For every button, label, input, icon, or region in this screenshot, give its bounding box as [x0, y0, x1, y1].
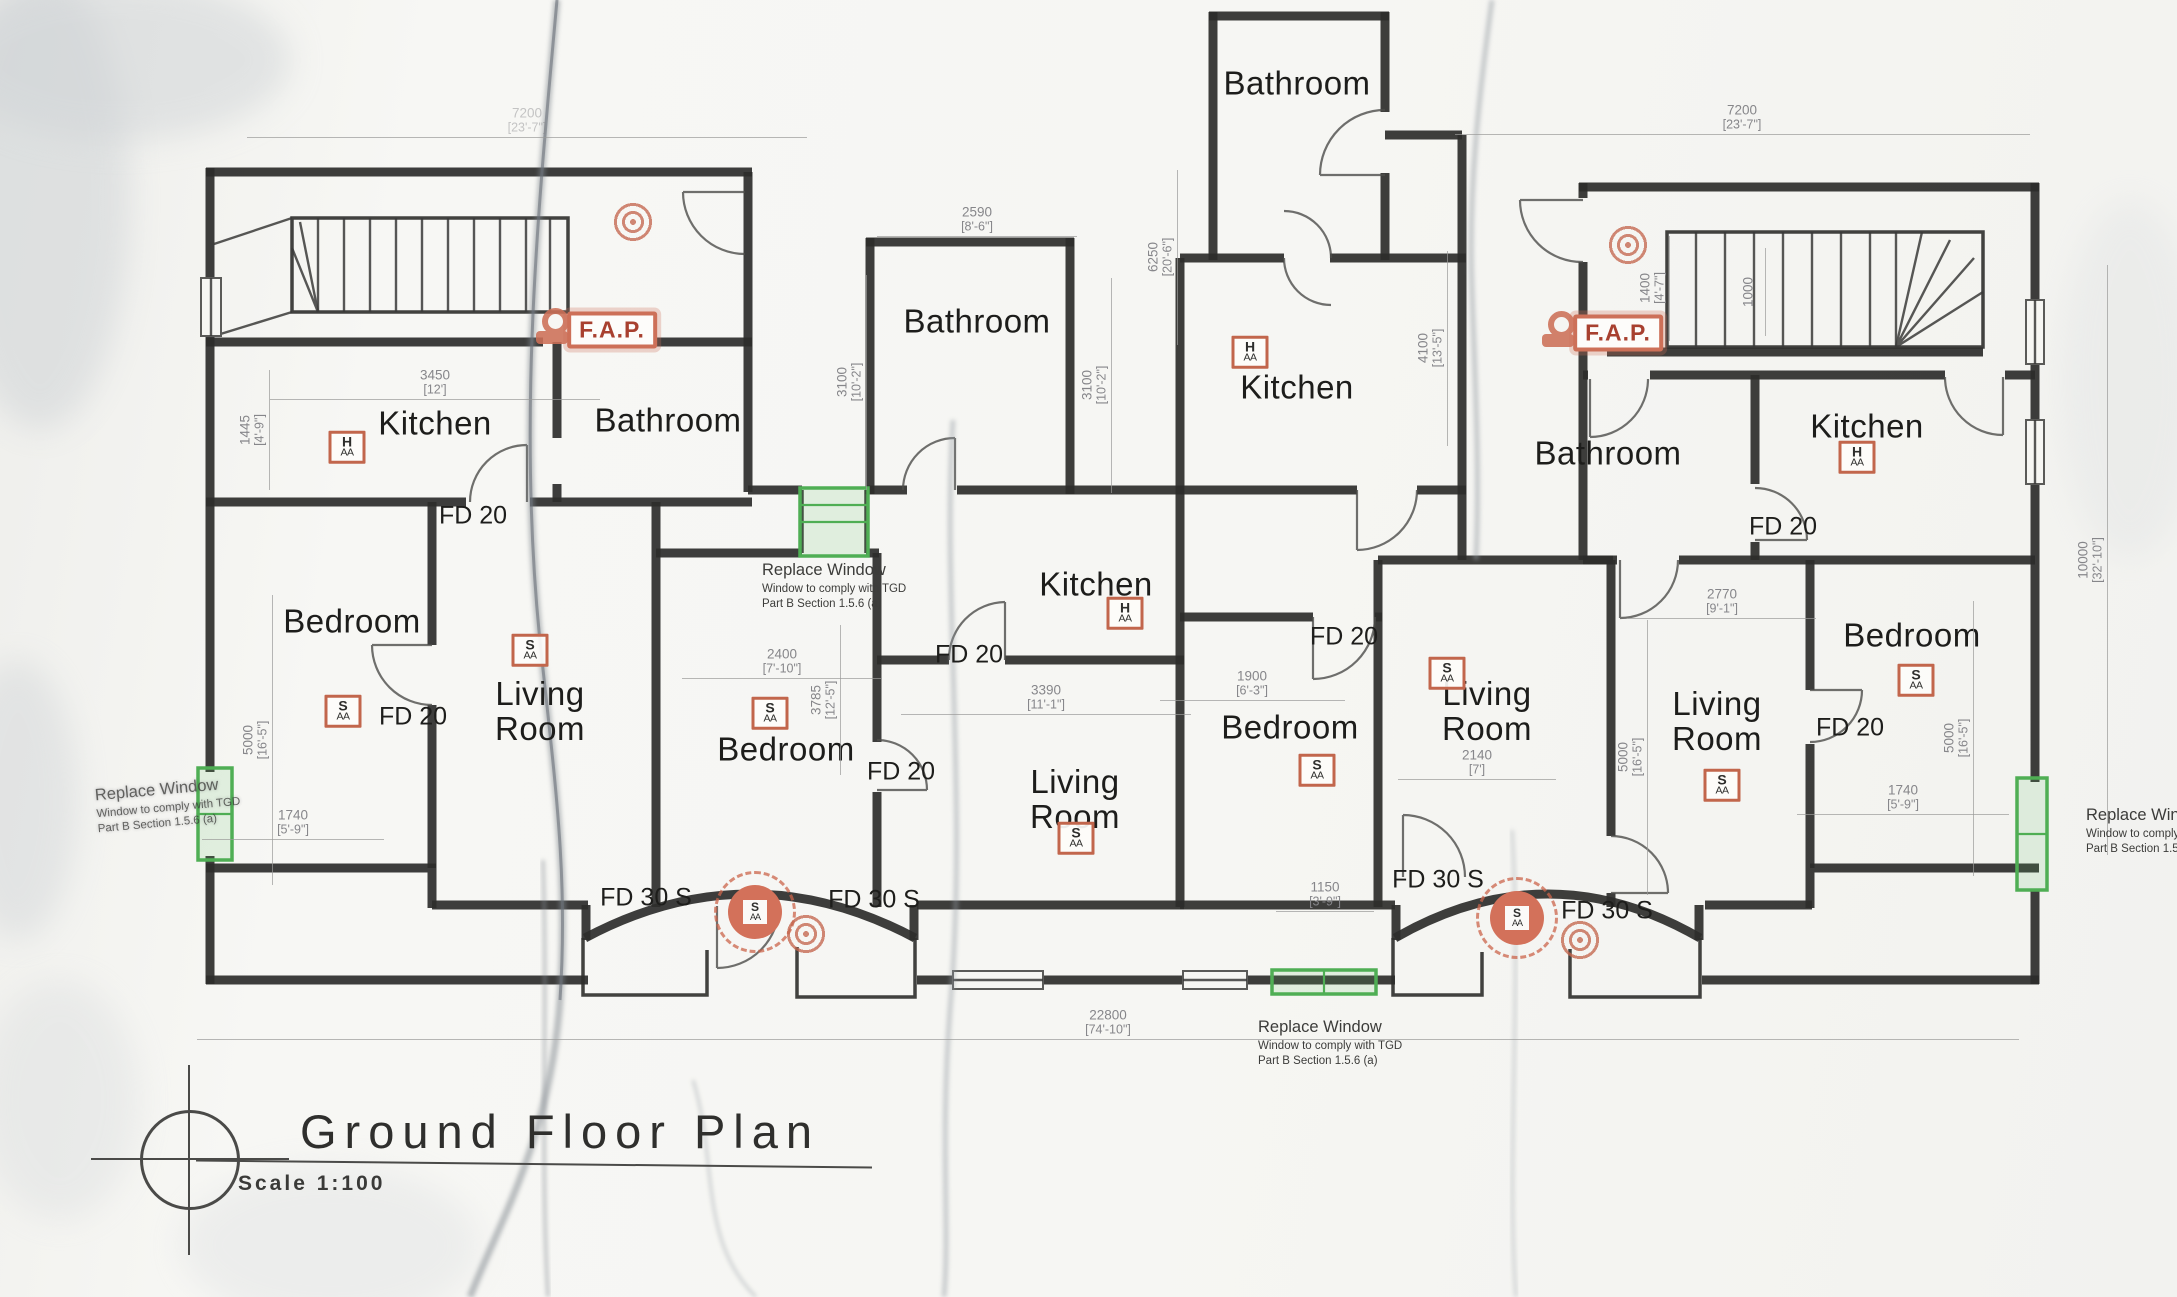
fire-door-label: FD 20: [935, 641, 1003, 670]
dimension-label: 2400[7'-10"]: [763, 646, 802, 675]
dimension-label: 5000[16'-5"]: [1941, 719, 1970, 758]
dimension-label: 3450[12']: [420, 367, 450, 396]
dimension-line: [1160, 700, 1345, 701]
dimension-line: [1177, 170, 1178, 345]
dimension-label: 2770[9'-1"]: [1706, 586, 1738, 615]
stairs-group: [214, 218, 1983, 347]
dimension-line: [1111, 278, 1112, 493]
fire-door-label: FD 30 S: [600, 884, 692, 913]
smoke-alarm-icon: SAA: [1299, 754, 1336, 787]
smoke-alarm-icon: SAA: [325, 695, 362, 728]
dimension-label: 2140[7']: [1462, 747, 1492, 776]
floor-plan-scan: KitchenBathroomBedroomLiving RoomBathroo…: [0, 0, 2177, 1297]
smoke-alarm-icon: SAA: [1898, 664, 1935, 697]
dimension-line: [1765, 248, 1766, 336]
note-line: Replace Window: [762, 561, 952, 580]
smoke-alarm-symbol: SAA: [1505, 906, 1529, 930]
note-line: Part B Section 1.5.6 (a): [2086, 842, 2177, 857]
fire-door-label: FD 20: [1816, 714, 1884, 743]
dimension-label: 4100[13'-5"]: [1415, 329, 1444, 368]
dimension-line: [269, 370, 270, 490]
room-label: Kitchen: [378, 407, 492, 442]
room-label: Bathroom: [903, 305, 1050, 340]
dimension-label: 1445[4'-9"]: [237, 414, 266, 446]
fire-alarm-bell-icon: [536, 308, 576, 344]
fire-door-label: FD 20: [439, 502, 507, 531]
dimension-label: 3100[10'-2"]: [1079, 366, 1108, 405]
dimension-label: 7200[23'-7"]: [508, 105, 547, 134]
note-line: Replace Window: [2086, 806, 2177, 825]
drawing-title: Ground Floor Plan: [300, 1104, 820, 1159]
alarm-sounder-icon: [1605, 222, 1651, 268]
room-label: Living Room: [1672, 687, 1762, 757]
dimension-label: 1900[6'-3"]: [1236, 668, 1268, 697]
dimension-line: [1628, 618, 1816, 619]
room-label: Kitchen: [1810, 410, 1924, 445]
dimension-line: [1973, 601, 1974, 876]
fire-door-label: FD 30 S: [1392, 866, 1484, 895]
room-label: Bathroom: [1223, 67, 1370, 102]
dimension-line: [247, 137, 807, 138]
smoke-alarm-symbol: SAA: [743, 900, 767, 924]
note-line: Window to comply with TGD: [1258, 1039, 1448, 1054]
alarm-sounder-icon: [610, 199, 656, 245]
dimension-line: [866, 275, 867, 490]
smoke-alarm-icon: SAA: [1058, 822, 1095, 855]
fire-door-label: FD 30 S: [828, 886, 920, 915]
dimension-label: 5000[16'-5"]: [1615, 738, 1644, 777]
replace-window-note: Replace WindowWindow to comply with TGDP…: [1258, 1018, 1448, 1069]
dimension-label: 5000[16'-5"]: [240, 721, 269, 760]
room-label: Bathroom: [1534, 437, 1681, 472]
heat-alarm-icon: HAA: [1107, 597, 1144, 630]
dimension-line: [840, 625, 841, 775]
smoke-alarm-icon: SAA: [1429, 657, 1466, 690]
room-label: Bedroom: [283, 605, 420, 640]
dimension-label: 22800[74'-10"]: [1085, 1007, 1131, 1036]
smoke-alarm-activated-icon: SAA: [1490, 891, 1544, 945]
dimension-line: [1647, 620, 1648, 895]
note-line: Replace Window: [1258, 1018, 1448, 1037]
dimension-label: 1000: [1740, 277, 1755, 307]
dimension-label: 10000[32'-10"]: [2075, 537, 2104, 583]
dimension-line: [270, 399, 600, 400]
smoke-alarm-icon: SAA: [512, 634, 549, 667]
note-line: Part B Section 1.5.6 (a): [762, 597, 952, 612]
heat-alarm-icon: HAA: [1232, 336, 1269, 369]
room-label: Bathroom: [594, 404, 741, 439]
dimension-line: [1797, 814, 2009, 815]
dimension-label: 3390[11'-1"]: [1027, 682, 1065, 711]
room-label: Kitchen: [1240, 371, 1354, 406]
room-label: Bedroom: [1221, 711, 1358, 746]
dimension-line: [1398, 779, 1556, 780]
alarm-sounder-icon: [1557, 917, 1603, 963]
dimension-line: [1447, 251, 1448, 446]
note-line: Part B Section 1.5.6 (a): [1258, 1054, 1448, 1069]
dimension-line: [197, 1039, 2019, 1040]
replace-window-note: Replace WindowWindow to comply with TGDP…: [762, 561, 952, 612]
alarm-sounder-icon: [783, 911, 829, 957]
room-label: Bedroom: [717, 733, 854, 768]
dimension-line: [1669, 236, 1670, 341]
dimension-label: 1400[4'-7"]: [1637, 272, 1666, 304]
drawing-scale: Scale 1:100: [238, 1172, 385, 1196]
room-label: Bedroom: [1843, 619, 1980, 654]
fire-alarm-bell-icon: [1542, 311, 1582, 347]
dimension-line: [877, 236, 1077, 237]
dimension-label: 1740[5'-9"]: [1887, 782, 1919, 811]
heat-alarm-icon: HAA: [329, 431, 366, 464]
dimension-label: 3100[10'-2"]: [834, 363, 863, 402]
note-line: Window to comply with TGD: [762, 582, 952, 597]
dimension-line: [272, 595, 273, 885]
fire-door-label: FD 20: [1310, 623, 1378, 652]
fire-door-label: FD 20: [379, 703, 447, 732]
dimension-line: [2107, 265, 2108, 855]
smoke-alarm-activated-icon: SAA: [728, 885, 782, 939]
smoke-alarm-icon: SAA: [1704, 769, 1741, 802]
fire-door-label: FD 20: [867, 758, 935, 787]
replace-window-note: Replace WindowWindow to comply with TGDP…: [2086, 806, 2177, 857]
windows-group: [198, 278, 2047, 994]
dimension-line: [1276, 911, 1374, 912]
dimension-line: [682, 678, 882, 679]
note-line: Window to comply with TGD: [2086, 827, 2177, 842]
fire-alarm-panel-label: F.A.P.: [1573, 315, 1663, 352]
dimension-line: [1455, 134, 2030, 135]
heat-alarm-icon: HAA: [1839, 441, 1876, 474]
dimension-label: 2590[8'-6"]: [961, 204, 993, 233]
dimension-label: 1150[3'-9"]: [1309, 879, 1341, 908]
dimension-line: [202, 839, 384, 840]
room-label: Living Room: [495, 677, 585, 747]
fire-alarm-panel-label: F.A.P.: [567, 312, 657, 349]
dimension-label: 7200[23'-7"]: [1723, 102, 1762, 131]
dimension-label: 3785[12'-5"]: [808, 681, 837, 720]
dimension-label: 6250[20'-6"]: [1145, 238, 1174, 277]
smoke-alarm-icon: SAA: [752, 697, 789, 730]
dimension-line: [901, 714, 1191, 715]
fire-door-label: FD 20: [1749, 513, 1817, 542]
